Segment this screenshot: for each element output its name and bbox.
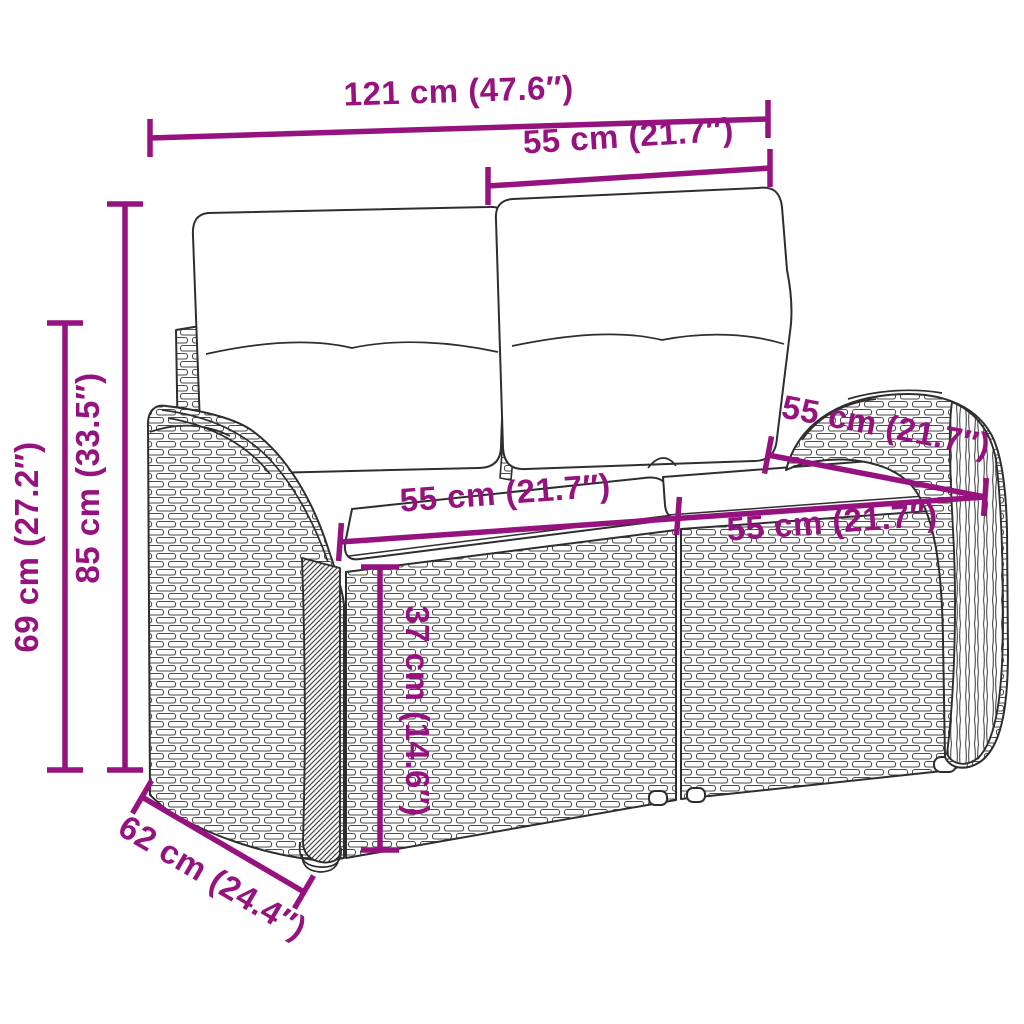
dim-seat-height-label: 37 cm (14.6″) — [399, 605, 436, 816]
dim-armrest-height-label: 69 cm (27.2″) — [8, 441, 45, 652]
dim-overall-width-label: 121 cm (47.6″) — [343, 68, 574, 112]
bench-dimension-diagram: 121 cm (47.6″) 55 cm (21.7″) 85 cm (33.5… — [0, 0, 1024, 1024]
diagram-canvas: 121 cm (47.6″) 55 cm (21.7″) 85 cm (33.5… — [0, 0, 1024, 1024]
corner-post-left — [300, 558, 341, 872]
dim-total-height-label: 85 cm (33.5″) — [69, 372, 106, 583]
dim-backrest-width-label: 55 cm (21.7″) — [522, 110, 735, 160]
base-left — [346, 530, 676, 858]
dim-total-height: 85 cm (33.5″) — [69, 204, 143, 770]
bench-foot-center-left — [649, 791, 667, 805]
back-pillow-right — [496, 188, 792, 470]
bench-foot-center-right — [687, 788, 705, 802]
